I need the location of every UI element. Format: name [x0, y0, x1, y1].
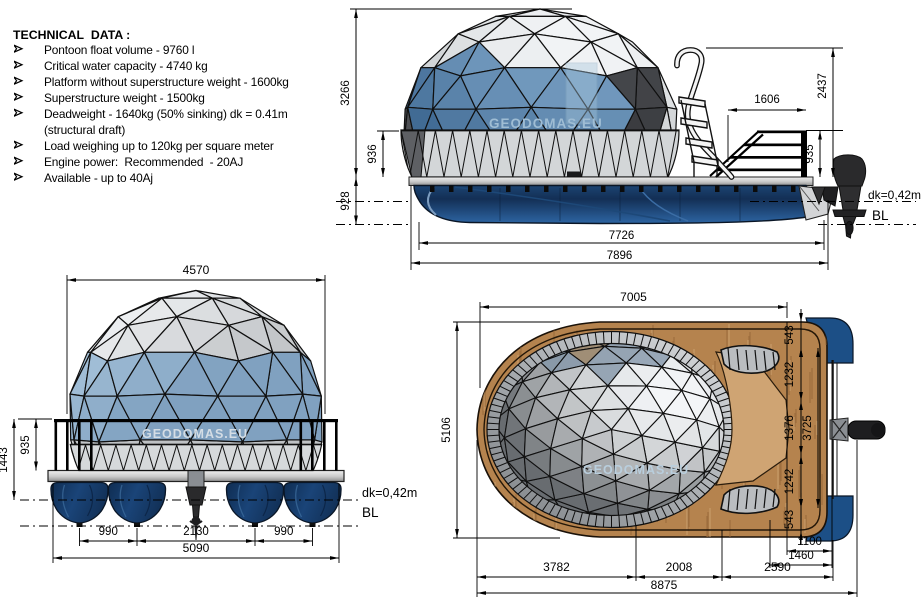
- svg-text:GEODOMAS.EU: GEODOMAS.EU: [142, 427, 248, 441]
- svg-text:935: 935: [20, 435, 32, 454]
- svg-text:dk=0,42m: dk=0,42m: [868, 188, 921, 202]
- svg-text:1606: 1606: [754, 94, 780, 106]
- svg-text:7896: 7896: [607, 250, 633, 262]
- svg-text:3782: 3782: [543, 560, 570, 574]
- svg-text:1242: 1242: [784, 469, 796, 495]
- svg-text:1460: 1460: [788, 550, 814, 562]
- svg-text:1443: 1443: [0, 447, 10, 473]
- svg-text:7726: 7726: [609, 230, 635, 242]
- svg-text:935: 935: [804, 144, 816, 163]
- svg-text:5090: 5090: [183, 541, 210, 555]
- svg-text:2008: 2008: [666, 560, 693, 574]
- svg-text:BL: BL: [362, 505, 379, 520]
- svg-text:1376: 1376: [784, 415, 796, 441]
- svg-text:BL: BL: [872, 208, 889, 223]
- svg-text:4570: 4570: [183, 263, 210, 277]
- svg-text:3725: 3725: [802, 415, 814, 441]
- svg-text:GEODOMAS.EU: GEODOMAS.EU: [489, 116, 603, 131]
- svg-text:990: 990: [274, 526, 293, 538]
- svg-text:2590: 2590: [764, 560, 791, 574]
- svg-text:1232: 1232: [784, 362, 796, 388]
- svg-text:8875: 8875: [651, 578, 678, 592]
- svg-text:2130: 2130: [183, 526, 209, 538]
- svg-text:7005: 7005: [620, 290, 647, 304]
- svg-text:543: 543: [784, 325, 796, 344]
- svg-text:2437: 2437: [817, 73, 829, 99]
- svg-text:GEODOMAS.EU: GEODOMAS.EU: [583, 463, 689, 477]
- svg-text:543: 543: [784, 510, 796, 529]
- svg-text:dk=0,42m: dk=0,42m: [362, 486, 417, 500]
- svg-text:1100: 1100: [797, 536, 822, 548]
- svg-text:990: 990: [99, 526, 118, 538]
- svg-text:5106: 5106: [441, 417, 453, 443]
